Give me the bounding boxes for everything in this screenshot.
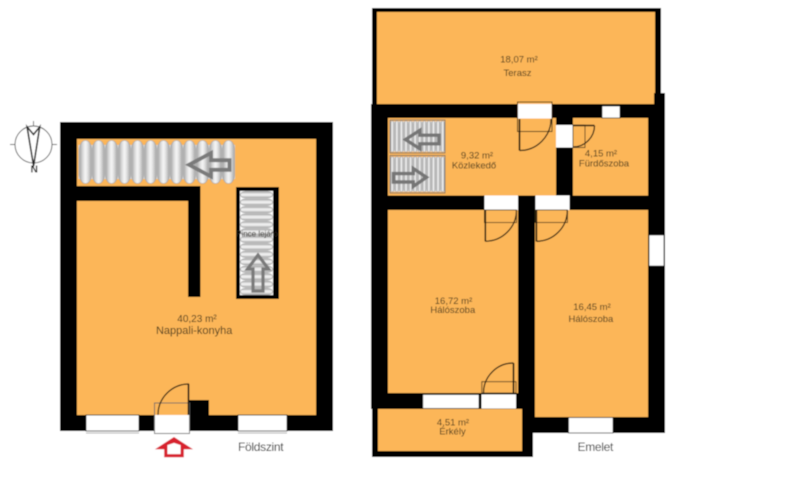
svg-text:40,23 m²: 40,23 m² — [177, 314, 217, 325]
svg-text:Emelet: Emelet — [578, 440, 615, 454]
svg-text:Hálószoba: Hálószoba — [430, 305, 476, 316]
svg-text:N: N — [31, 165, 38, 176]
svg-text:Pince lejáró: Pince lejáró — [236, 230, 278, 239]
svg-text:Terasz: Terasz — [504, 68, 532, 79]
svg-text:Földszint: Földszint — [238, 440, 284, 454]
svg-text:Nappali-konyha: Nappali-konyha — [156, 325, 233, 337]
svg-text:Hálószoba: Hálószoba — [568, 314, 614, 325]
svg-text:18,07 m²: 18,07 m² — [500, 55, 538, 66]
svg-text:Közlekedő: Közlekedő — [452, 161, 496, 172]
svg-text:16,45 m²: 16,45 m² — [573, 302, 611, 313]
svg-text:Fürdőszoba: Fürdőszoba — [579, 158, 630, 169]
svg-text:Érkély: Érkély — [439, 426, 466, 437]
